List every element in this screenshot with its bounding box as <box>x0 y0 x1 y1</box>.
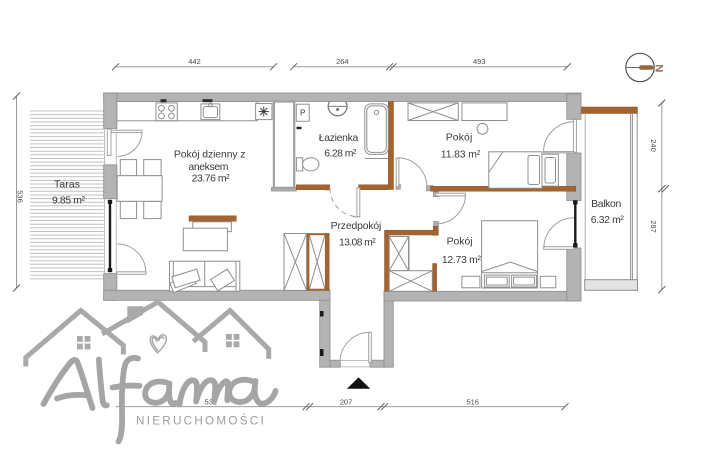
svg-text:23.76 m²: 23.76 m² <box>192 173 231 184</box>
svg-text:NIERUCHOMOŚCI: NIERUCHOMOŚCI <box>136 413 266 428</box>
svg-text:Przedpokój: Przedpokój <box>331 221 382 232</box>
svg-text:207: 207 <box>340 397 353 406</box>
svg-text:13.08 m²: 13.08 m² <box>339 237 376 248</box>
svg-text:442: 442 <box>188 57 201 66</box>
svg-text:Pokój: Pokój <box>446 132 473 143</box>
svg-text:6.32 m²: 6.32 m² <box>591 215 625 226</box>
svg-text:aneksem: aneksem <box>188 162 228 173</box>
svg-text:12.73 m²: 12.73 m² <box>442 255 482 266</box>
svg-text:Pokój: Pokój <box>447 237 473 248</box>
svg-text:11.83 m²: 11.83 m² <box>441 149 481 160</box>
svg-text:264: 264 <box>336 57 349 66</box>
svg-text:Balkon: Balkon <box>591 199 621 210</box>
svg-text:P: P <box>300 108 305 117</box>
svg-text:536: 536 <box>16 190 25 203</box>
svg-text:Pokój dzienny z: Pokój dzienny z <box>174 150 246 161</box>
svg-text:493: 493 <box>473 57 486 66</box>
svg-text:N: N <box>653 64 665 72</box>
svg-text:287: 287 <box>649 220 658 233</box>
svg-text:Taras: Taras <box>54 180 80 191</box>
svg-text:240: 240 <box>649 139 658 152</box>
svg-text:9.85 m²: 9.85 m² <box>52 196 86 207</box>
svg-text:6.28 m²: 6.28 m² <box>324 149 357 160</box>
svg-text:516: 516 <box>466 397 479 406</box>
svg-text:Łazienka: Łazienka <box>319 133 359 144</box>
